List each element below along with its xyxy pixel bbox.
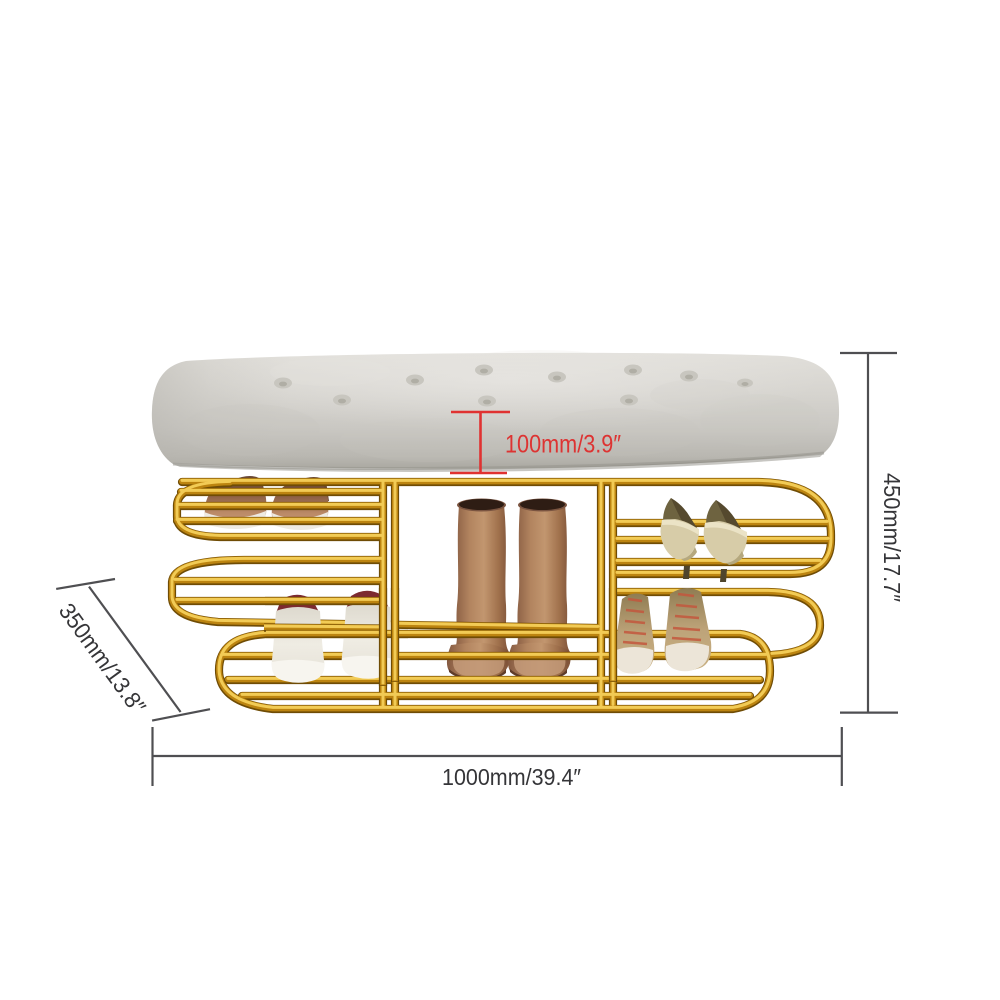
svg-text:1000mm/39.4″: 1000mm/39.4″ (442, 764, 581, 790)
svg-text:450mm/17.7″: 450mm/17.7″ (879, 473, 905, 602)
svg-text:100mm/3.9″: 100mm/3.9″ (505, 431, 621, 459)
